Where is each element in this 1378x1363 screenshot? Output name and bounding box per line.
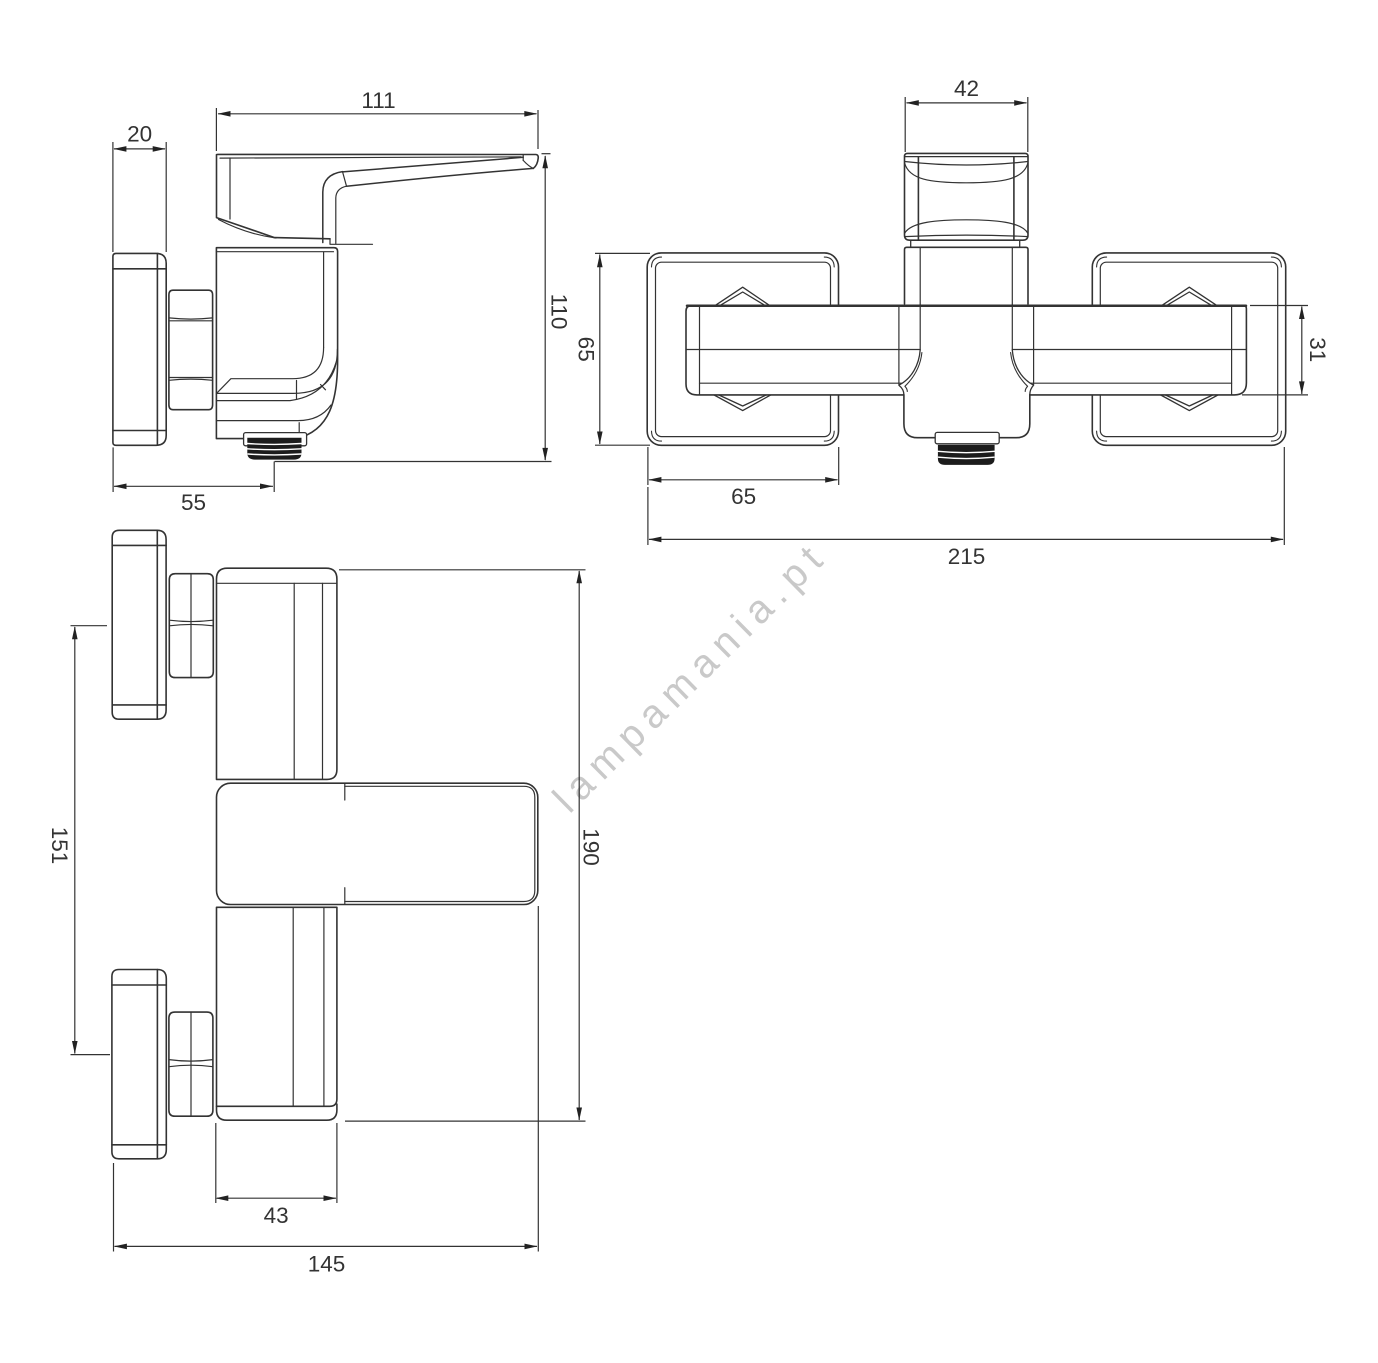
svg-text:215: 215 [948, 544, 986, 569]
svg-text:145: 145 [308, 1251, 346, 1276]
svg-text:65: 65 [573, 337, 598, 362]
svg-text:111: 111 [361, 88, 395, 113]
svg-text:65: 65 [731, 484, 756, 509]
svg-text:42: 42 [954, 76, 979, 101]
svg-text:55: 55 [181, 490, 206, 515]
svg-text:31: 31 [1305, 337, 1330, 362]
svg-text:151: 151 [47, 827, 72, 865]
svg-text:110: 110 [547, 294, 572, 330]
svg-text:43: 43 [264, 1203, 289, 1228]
svg-text:190: 190 [579, 828, 604, 866]
svg-text:20: 20 [127, 122, 152, 147]
